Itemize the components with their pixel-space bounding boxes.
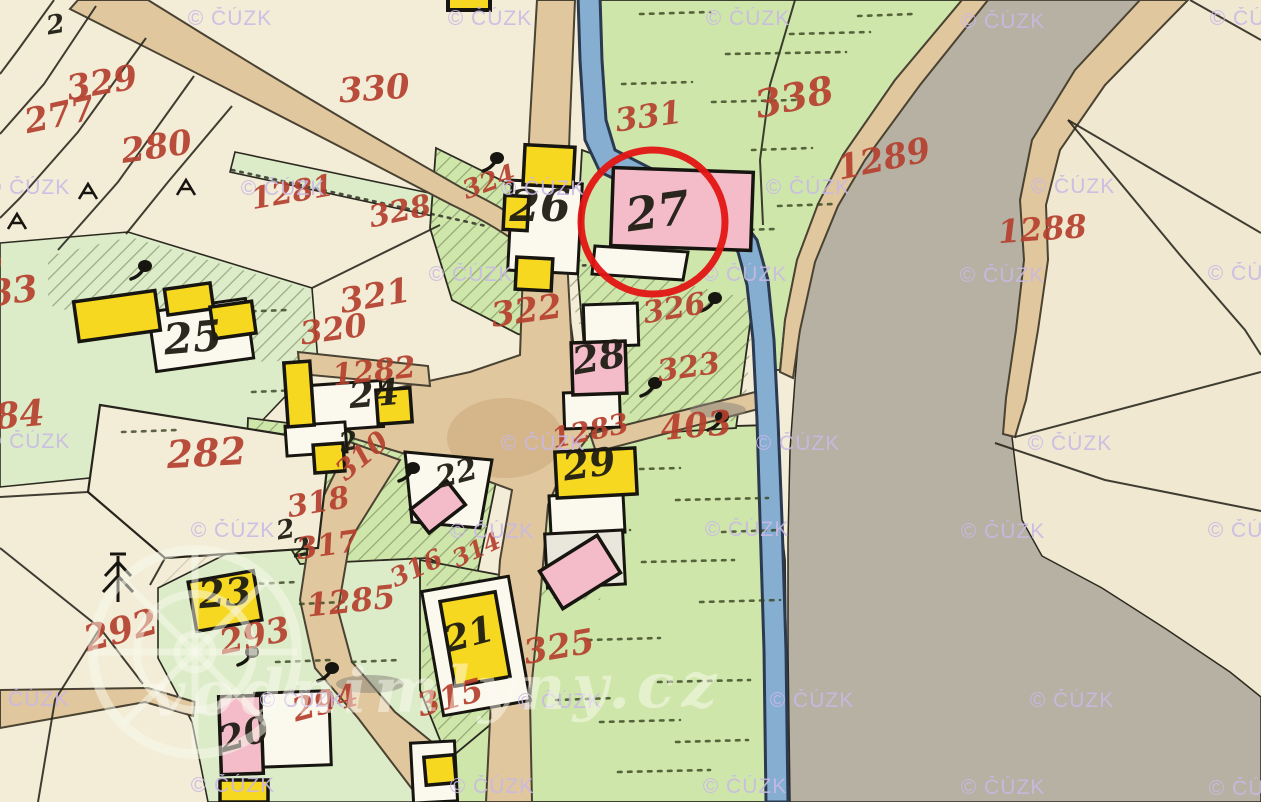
- watermark-cuzk-32: © ČÚZK: [1209, 777, 1261, 800]
- watermark-cuzk-10: © ČÚZK: [429, 263, 513, 286]
- house-number-28: 28: [568, 330, 629, 384]
- watermark-cuzk-15: © ČÚZK: [501, 432, 585, 455]
- watermark-cuzk-3: © ČÚZK: [961, 10, 1045, 33]
- watermark-cuzk-31: © ČÚZK: [961, 776, 1045, 799]
- watermark-cuzk-0: © ČÚZK: [188, 7, 272, 30]
- watermark-cuzk-2: © ČÚZK: [706, 7, 790, 30]
- vodnimlyny-watermark: vodnimlyny.cz: [149, 648, 724, 731]
- watermark-cuzk-30: © ČÚZK: [703, 775, 787, 798]
- watermark-cuzk-8: © ČÚZK: [766, 176, 850, 199]
- building-24-wood: [284, 361, 314, 427]
- watermark-cuzk-7: © ČÚZK: [501, 177, 585, 200]
- watermark-cuzk-26: © ČÚZK: [770, 689, 854, 712]
- cadastral-map[interactable]: 2222 26272829252423222120 32927728033012…: [0, 0, 1261, 802]
- watermark-cuzk-29: © ČÚZK: [450, 775, 534, 798]
- watermark-cuzk-16: © ČÚZK: [756, 432, 840, 455]
- watermark-cuzk-27: © ČÚZK: [1030, 689, 1114, 712]
- watermark-cuzk-19: © ČÚZK: [450, 520, 534, 543]
- watermark-cuzk-6: © ČÚZK: [241, 177, 325, 200]
- watermark-cuzk-20: © ČÚZK: [705, 518, 789, 541]
- house-number-25: 25: [160, 311, 223, 365]
- watermark-cuzk-28: © ČÚZK: [191, 774, 275, 797]
- watermark-cuzk-1: © ČÚZK: [448, 7, 532, 30]
- watermark-cuzk-4: © ČÚZK: [1210, 7, 1261, 30]
- watermark-cuzk-5: © ČÚZK: [0, 176, 70, 199]
- watermark-cuzk-13: © ČÚZK: [1208, 262, 1261, 285]
- watermark-cuzk-11: © ČÚZK: [703, 263, 787, 286]
- watermark-cuzk-12: © ČÚZK: [960, 264, 1044, 287]
- watermark-cuzk-22: © ČÚZK: [1208, 519, 1261, 542]
- parcel-number-330: 330: [337, 67, 411, 112]
- map-viewport[interactable]: 2222 26272829252423222120 32927728033012…: [0, 0, 1261, 802]
- watermark-cuzk-21: © ČÚZK: [961, 520, 1045, 543]
- house-number-27: 27: [621, 180, 693, 243]
- watermark-cuzk-18: © ČÚZK: [191, 519, 275, 542]
- parcel-number-282: 282: [165, 428, 248, 477]
- watermark-cuzk-14: © ČÚZK: [0, 430, 70, 453]
- watermark-cuzk-23: © ČÚZK: [0, 688, 69, 711]
- watermark-cuzk-9: © ČÚZK: [1031, 175, 1115, 198]
- parcel-number-403: 403: [659, 403, 733, 449]
- watermark-cuzk-17: © ČÚZK: [1028, 432, 1112, 455]
- parcel-number-1288: 1288: [996, 207, 1087, 251]
